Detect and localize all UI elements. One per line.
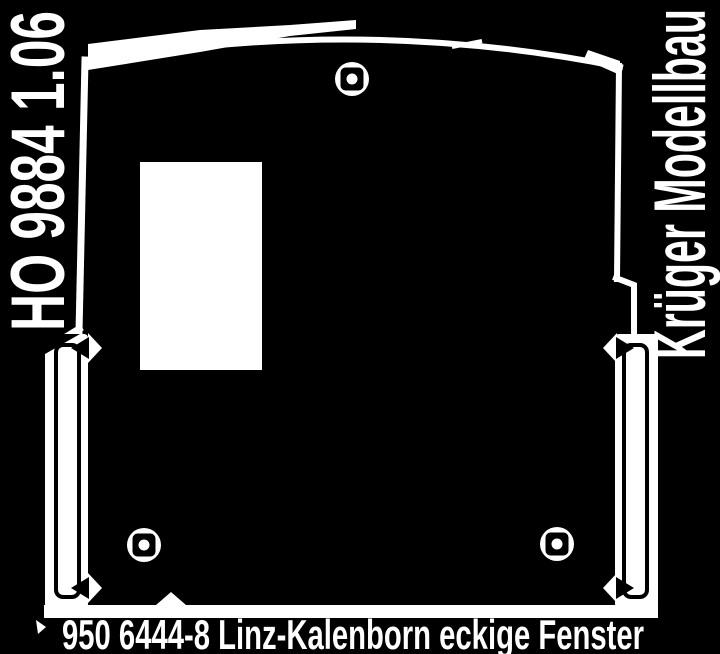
- right-tab-bottom-arrow-tip: [603, 573, 617, 603]
- part-scan-canvas: HO 9884 1.06 Krüger Modellbau 950 6444-8…: [0, 0, 720, 654]
- marker-center-dot: [139, 540, 150, 551]
- right-tab-body: [615, 334, 658, 608]
- window-opening: [140, 162, 262, 370]
- article-number-label: HO 9884 1.06: [0, 11, 81, 331]
- right-fold-tab: [603, 333, 658, 608]
- manufacturer-label: Krüger Modellbau: [640, 9, 720, 359]
- screw-hole-marker-bottom-right-icon: [540, 527, 574, 561]
- left-tab-bottom-arrow-tip: [88, 573, 102, 603]
- left-tab-body: [45, 334, 88, 608]
- bottom-edge-bump: [156, 592, 186, 605]
- right-wall-jog: [616, 278, 634, 336]
- arch-thick-segment: [88, 20, 356, 70]
- left-tab-top-arrow-tip: [88, 333, 102, 363]
- marker-center-dot: [552, 539, 563, 550]
- screw-hole-marker-bottom-left-icon: [127, 528, 161, 562]
- right-wall-edge: [617, 66, 619, 279]
- bottom-left-tick-mark: [36, 620, 46, 634]
- product-name-label: 950 6444-8 Linz-Kalenborn eckige Fenster: [62, 611, 644, 654]
- screw-hole-marker-top-icon: [335, 62, 369, 96]
- part-drawing: HO 9884 1.06 Krüger Modellbau 950 6444-8…: [0, 0, 720, 654]
- marker-center-dot: [347, 74, 358, 85]
- left-fold-tab: [45, 333, 102, 608]
- right-tab-top-arrow-tip: [603, 333, 617, 363]
